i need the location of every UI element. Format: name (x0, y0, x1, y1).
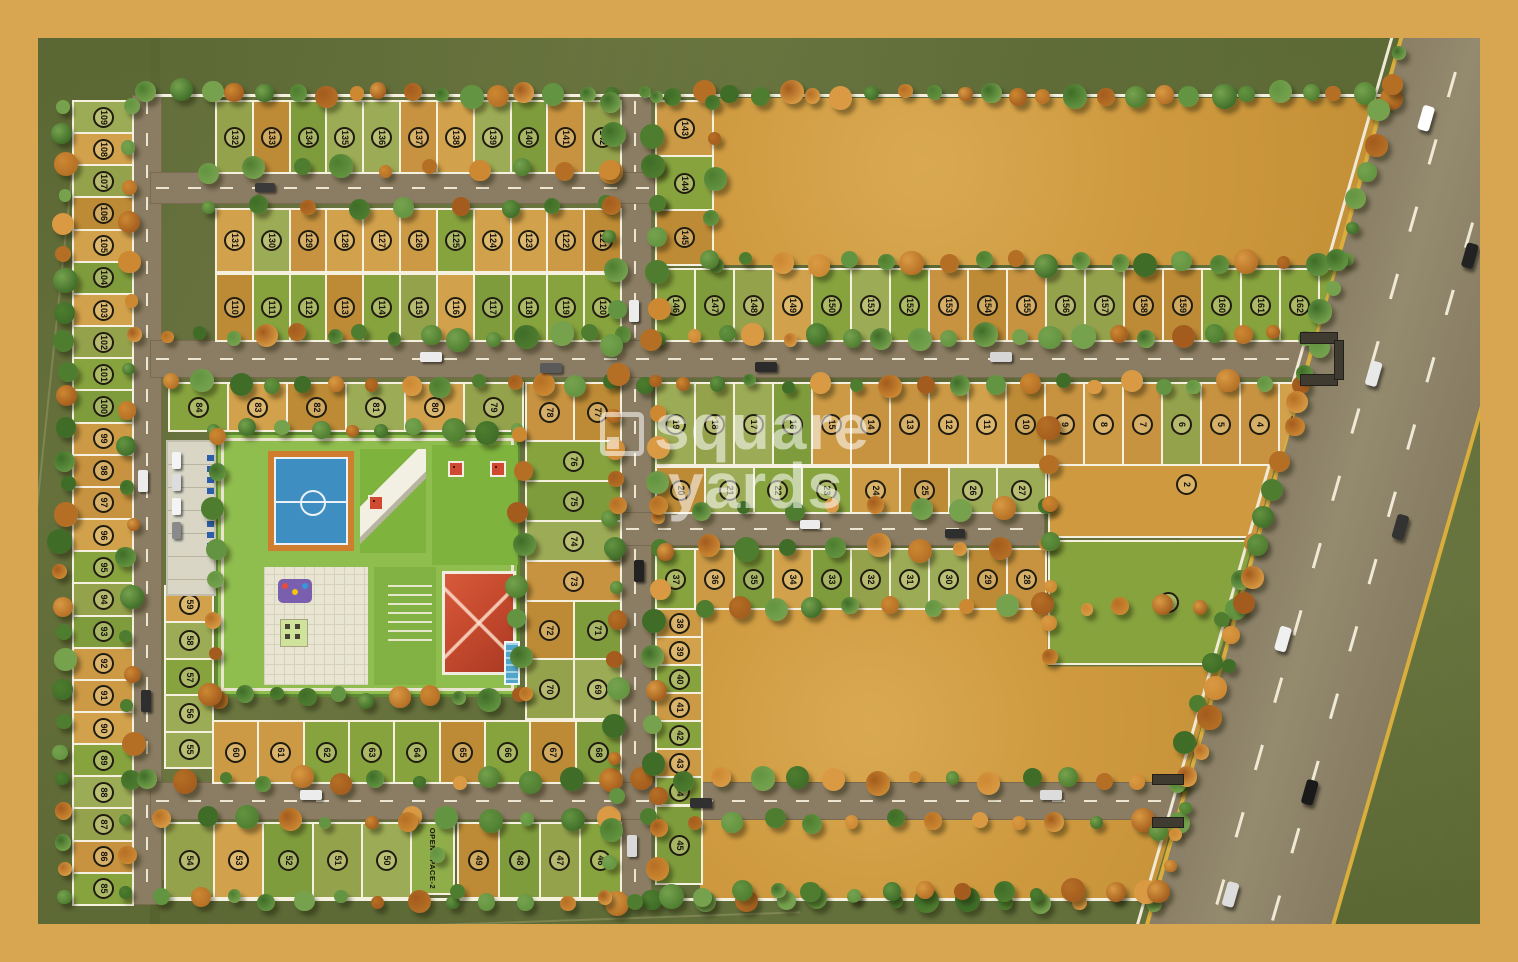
tree (228, 889, 242, 903)
plot-strip-pair-72-71: 7271 (525, 600, 622, 660)
tree (124, 98, 140, 114)
tree (1303, 84, 1320, 101)
tree (996, 594, 1019, 617)
tree (1202, 653, 1222, 673)
tree (805, 88, 821, 104)
tree (120, 480, 135, 495)
tree (883, 882, 902, 901)
tree (649, 195, 667, 213)
tree (510, 646, 532, 668)
tree (1152, 594, 1173, 615)
car (540, 363, 562, 373)
plot-number: 62 (316, 742, 337, 763)
plot-number: 73 (563, 571, 584, 592)
plot-number: 84 (188, 397, 209, 418)
tree (1205, 324, 1224, 343)
tree (58, 862, 72, 876)
tree (916, 881, 934, 899)
plot: 52 (264, 824, 311, 897)
plot-number: 133 (261, 127, 282, 148)
tree (1137, 330, 1154, 347)
tree (609, 788, 625, 804)
tree (950, 375, 970, 395)
tree (898, 84, 913, 99)
tree (52, 679, 73, 700)
tree (917, 376, 935, 394)
plot-number: 6 (1171, 414, 1192, 435)
tree (57, 890, 72, 905)
plot: 81 (347, 384, 404, 430)
tree (992, 496, 1016, 520)
plot-number: 8 (1093, 414, 1114, 435)
tree (700, 250, 719, 269)
tree (519, 687, 533, 701)
plot-number: 138 (445, 127, 466, 148)
plot: 7 (1124, 384, 1161, 464)
tree (365, 816, 378, 829)
tree (298, 688, 316, 706)
tree (600, 334, 623, 357)
plot-number: 28 (1016, 569, 1037, 590)
plot-number: 123 (518, 230, 539, 251)
tree (393, 197, 414, 218)
plot-number: 45 (669, 835, 690, 856)
tree (127, 327, 142, 342)
tree (829, 86, 853, 110)
tree (981, 83, 1001, 103)
plot-number: 80 (424, 397, 445, 418)
plot-number: 92 (93, 653, 114, 674)
car (1301, 779, 1319, 806)
tree (486, 332, 501, 347)
amphitheater-steps (388, 585, 432, 641)
plot-number: 118 (518, 297, 539, 318)
tree (976, 251, 993, 268)
tree (479, 809, 503, 833)
plot-number: 61 (270, 742, 291, 763)
car (138, 470, 148, 492)
tree (925, 600, 941, 616)
tree (53, 330, 74, 351)
tree (120, 585, 144, 609)
tree (542, 83, 565, 106)
plot: 124 (475, 210, 510, 271)
tree (161, 331, 173, 343)
gazebo (448, 461, 464, 477)
plot: 60 (214, 722, 257, 782)
tree (729, 596, 752, 619)
tree (153, 888, 170, 905)
tree (643, 715, 662, 734)
plot-number: 51 (327, 850, 348, 871)
tree (608, 300, 627, 319)
tree (198, 806, 219, 827)
tree (1042, 496, 1058, 512)
tree (649, 787, 668, 806)
tree (601, 122, 626, 147)
site-master-plan: 2 1 109108107106105104103102101100999897… (0, 0, 1518, 962)
tree (435, 88, 449, 102)
square-yards-logo-icon (600, 412, 644, 456)
plot: 58 (166, 623, 212, 657)
tree (786, 766, 809, 789)
tree (291, 765, 314, 788)
plot-strip-bottom-row-49-46: 49484746 (457, 822, 622, 899)
tree (331, 686, 347, 702)
tree (743, 374, 756, 387)
tree (646, 680, 667, 701)
plot-number: 106 (93, 203, 114, 224)
tree (230, 373, 253, 396)
tree (429, 377, 450, 398)
tree (1269, 451, 1290, 472)
gazebo (490, 461, 506, 477)
plot: 8 (1085, 384, 1122, 464)
tree (118, 251, 141, 274)
tree (808, 254, 830, 276)
kids-play-area (264, 567, 368, 685)
tree (650, 579, 671, 600)
tree (55, 772, 69, 786)
plot-number: 157 (1094, 295, 1115, 316)
plot-number: 41 (669, 697, 690, 718)
golden-border-frame (0, 0, 38, 962)
tree (1266, 325, 1279, 338)
tree (641, 645, 664, 668)
tree (1012, 816, 1026, 830)
tree (207, 571, 224, 588)
plot-number: 87 (93, 814, 114, 835)
plot: 50 (363, 824, 410, 897)
plot-number: 64 (406, 742, 427, 763)
tree (358, 693, 374, 709)
plot: 143 (657, 102, 712, 155)
tree (721, 812, 743, 834)
tree (1325, 86, 1340, 101)
plot-number: 72 (539, 620, 560, 641)
tree (255, 324, 278, 347)
plot-number: 75 (563, 491, 584, 512)
tree (460, 85, 484, 109)
main-entrance-gate (1300, 332, 1344, 386)
plot-number: 40 (669, 669, 690, 690)
plot-number: 67 (542, 742, 563, 763)
plot-number: 159 (1172, 295, 1193, 316)
tree (475, 421, 499, 445)
tree (119, 886, 131, 898)
plot-number: 158 (1133, 295, 1154, 316)
tree (720, 85, 738, 103)
plot: 5 (1202, 384, 1239, 464)
tree (1171, 251, 1191, 271)
plot-number: 114 (371, 297, 392, 318)
tree (696, 600, 714, 618)
tree (1241, 566, 1264, 589)
tree (227, 331, 242, 346)
plot: 64 (395, 722, 438, 782)
tree (1012, 329, 1028, 345)
tree (1252, 506, 1274, 528)
tree (56, 714, 72, 730)
plot-number: 99 (93, 428, 114, 449)
plot-number: 135 (334, 127, 355, 148)
tree (190, 369, 213, 392)
tree (972, 812, 988, 828)
plot-number: 11 (976, 414, 997, 435)
tree (453, 776, 467, 790)
plot-number: 117 (482, 297, 503, 318)
tree (54, 648, 76, 670)
plot-number: 125 (445, 230, 466, 251)
plot-number: 81 (365, 397, 386, 418)
tree (673, 771, 694, 792)
plot: 42 (657, 722, 701, 748)
tree (224, 83, 244, 103)
tree (645, 260, 669, 284)
tree (1367, 99, 1390, 122)
tree (514, 461, 534, 481)
tree (533, 373, 556, 396)
plot-number: 39 (669, 641, 690, 662)
plot-number: 110 (224, 297, 245, 318)
tree (1345, 188, 1366, 209)
tree (688, 816, 702, 830)
plot-number: 104 (93, 267, 114, 288)
tree (703, 210, 719, 226)
tree (478, 766, 500, 788)
plot: 125 (438, 210, 473, 271)
tree (370, 82, 386, 98)
plot-number: 94 (93, 589, 114, 610)
tree (279, 808, 302, 831)
tree (878, 375, 901, 398)
plot: 126 (401, 210, 436, 271)
tree (648, 298, 670, 320)
tree (1156, 379, 1172, 395)
tree (688, 329, 702, 343)
car (690, 798, 712, 808)
tree (52, 213, 74, 235)
car (1221, 881, 1239, 908)
tree (784, 333, 797, 346)
plot-number: 29 (977, 569, 998, 590)
tree (627, 894, 643, 910)
car (990, 352, 1012, 362)
tree (927, 85, 942, 100)
plot-number: 54 (179, 850, 200, 871)
plot-number: 66 (497, 742, 518, 763)
tree (319, 817, 331, 829)
tree (561, 808, 584, 831)
plot: 51 (314, 824, 361, 897)
tree (765, 808, 785, 828)
car (1391, 513, 1409, 540)
tree (478, 893, 495, 910)
plot-number: 88 (93, 782, 114, 803)
plot-number: 74 (563, 531, 584, 552)
tree (513, 158, 531, 176)
plot-number: 111 (261, 297, 282, 318)
tree (1234, 325, 1253, 344)
tree (125, 294, 139, 308)
tree (600, 818, 624, 842)
tree (698, 534, 721, 557)
tree (55, 834, 72, 851)
tree (806, 323, 828, 345)
tree (560, 767, 584, 791)
clubhouse-roof (445, 574, 513, 672)
plot-number: 50 (376, 850, 397, 871)
tree (513, 82, 534, 103)
plot-number: 57 (179, 667, 200, 688)
plot-number: 122 (555, 230, 576, 251)
plot-number: 79 (483, 397, 504, 418)
plot-number: 144 (674, 173, 695, 194)
plot: 131 (217, 210, 252, 271)
tree (405, 418, 421, 434)
plot-number: 53 (228, 850, 249, 871)
tree (1234, 249, 1258, 273)
tree (866, 771, 891, 796)
plot: 102 (74, 327, 132, 357)
tree (908, 539, 932, 563)
tree (1020, 373, 1041, 394)
tree (909, 771, 921, 783)
plot-number: 102 (93, 332, 114, 353)
car (1040, 790, 1062, 800)
plot-number: 156 (1055, 295, 1076, 316)
tree (404, 83, 422, 101)
tree (329, 154, 352, 177)
plot-number: 89 (93, 750, 114, 771)
tree (1233, 592, 1255, 614)
tree (294, 158, 311, 175)
plot-number: 56 (179, 703, 200, 724)
tree (202, 81, 223, 102)
tree (270, 687, 283, 700)
tree (1031, 592, 1054, 615)
plot-number: 148 (743, 295, 764, 316)
tree (422, 159, 437, 174)
car (255, 183, 275, 192)
watermark-text: square yards (654, 398, 870, 516)
tree (1238, 86, 1254, 102)
tree (122, 180, 137, 195)
tree (1382, 74, 1403, 95)
plot: 149 (774, 270, 811, 340)
tree (514, 325, 538, 349)
watermark: square yards (600, 398, 870, 516)
tree (560, 896, 576, 912)
golden-border-frame (0, 0, 1518, 38)
tree (708, 132, 721, 145)
tree (202, 201, 215, 214)
plot-number: 68 (588, 742, 609, 763)
tree (366, 770, 384, 788)
tree (135, 81, 156, 102)
plot-number: 131 (224, 230, 245, 251)
tree (911, 498, 933, 520)
tree (640, 329, 662, 351)
tree (388, 332, 402, 346)
car (141, 690, 151, 712)
tree (477, 688, 501, 712)
plot-number: 154 (977, 295, 998, 316)
plot-number: 101 (93, 364, 114, 385)
plot-number: 103 (93, 300, 114, 321)
plot-number: 71 (587, 620, 608, 641)
shade-structure (360, 449, 426, 553)
amenity-area (215, 432, 520, 697)
car (755, 362, 777, 372)
plot-number: 4 (1249, 414, 1270, 435)
tree (118, 846, 136, 864)
plot: 39 (657, 638, 701, 664)
plot-number: 90 (93, 718, 114, 739)
tree (152, 809, 171, 828)
tree (899, 251, 923, 275)
plot-number: 141 (555, 127, 576, 148)
tree (1034, 254, 1058, 278)
tree (249, 195, 268, 214)
plot-number: 113 (334, 297, 355, 318)
tree (1164, 860, 1176, 872)
seating-area (280, 619, 308, 647)
plot: 138 (438, 102, 473, 172)
tree (1197, 705, 1221, 729)
central-lawn (432, 445, 518, 565)
tree (850, 379, 863, 392)
tree (1155, 85, 1174, 104)
plot: 12 (930, 384, 967, 464)
tree (607, 363, 630, 386)
tree (371, 896, 384, 909)
tree (56, 417, 76, 437)
tree (1169, 828, 1182, 841)
tree (487, 85, 509, 107)
plot-number: 149 (782, 295, 803, 316)
plot-number: 140 (518, 127, 539, 148)
plot: 123 (512, 210, 547, 271)
car (634, 560, 644, 582)
tree (647, 227, 667, 247)
plot-number: 130 (261, 230, 282, 251)
tree (346, 425, 358, 437)
plot-number: 12 (938, 414, 959, 435)
tree (949, 499, 972, 522)
tree (236, 685, 254, 703)
tree (604, 537, 626, 559)
tree (739, 252, 752, 265)
plot-number: 155 (1016, 295, 1037, 316)
plot-number: 83 (247, 397, 268, 418)
plot-number: 69 (587, 679, 608, 700)
tree (646, 857, 670, 881)
tree (1041, 532, 1060, 551)
plot-number: 153 (938, 295, 959, 316)
tree (1261, 479, 1283, 501)
tree (205, 612, 222, 629)
tree (507, 609, 526, 628)
tree (1063, 84, 1087, 108)
tree (312, 421, 331, 440)
plot-number: 35 (743, 569, 764, 590)
tree (864, 86, 878, 100)
plot: 55 (166, 733, 212, 767)
tree (1038, 326, 1062, 350)
tree (1173, 731, 1196, 754)
plot-number: 27 (1011, 480, 1032, 501)
